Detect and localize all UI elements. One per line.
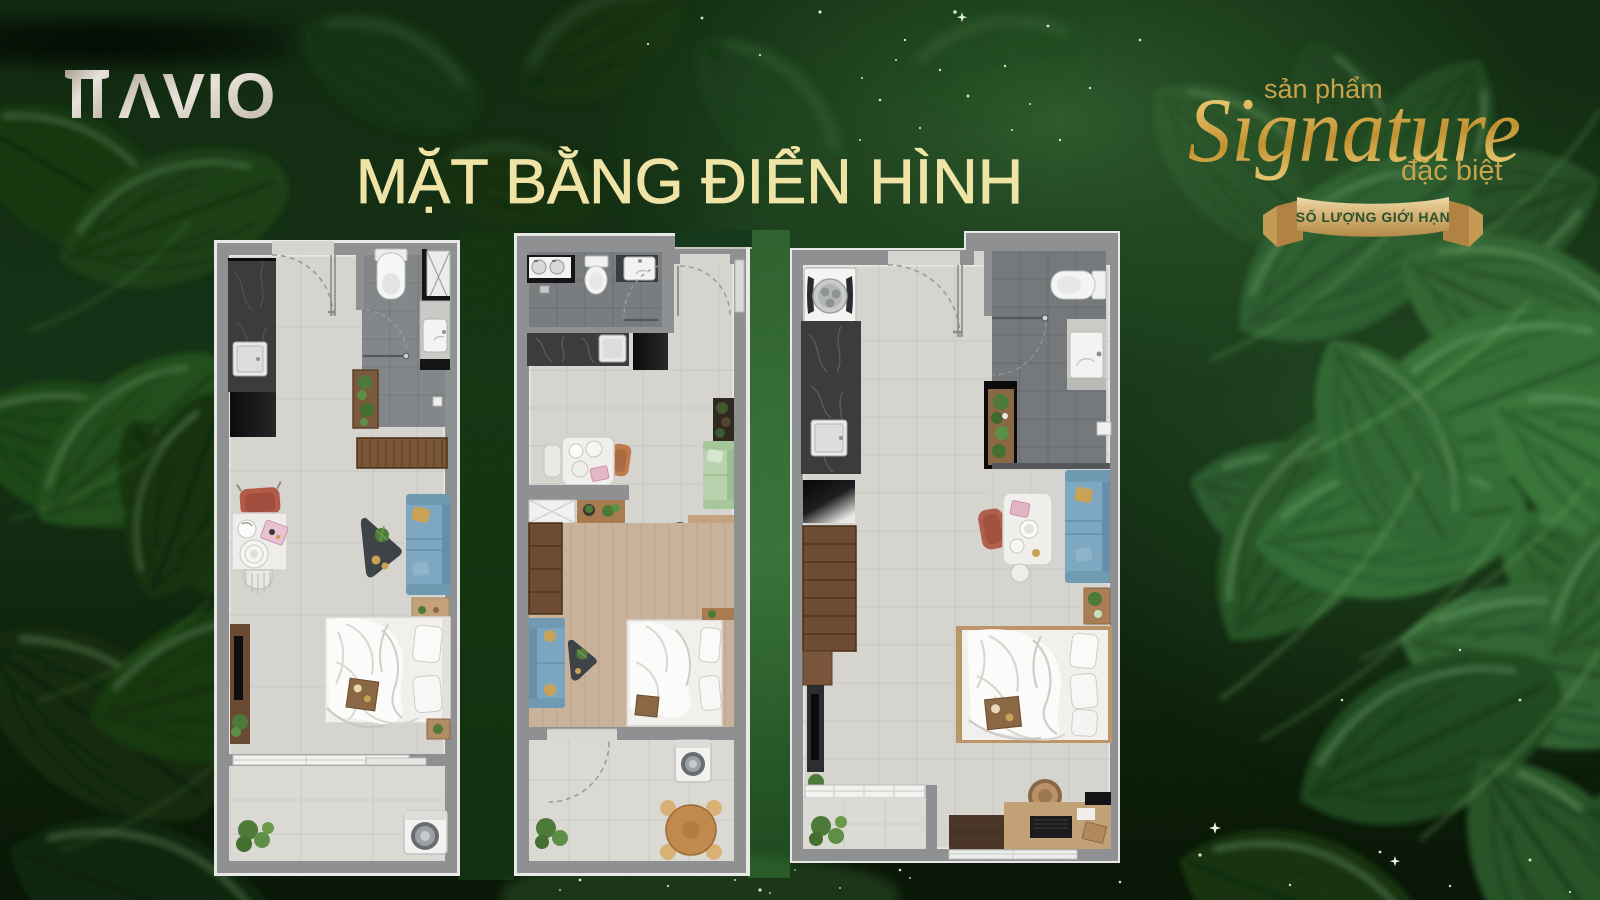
svg-text:ΛVIO: ΛVIO (118, 64, 277, 124)
svg-text:SỐ LƯỢNG GIỚI HẠN: SỐ LƯỢNG GIỚI HẠN (1296, 208, 1450, 225)
